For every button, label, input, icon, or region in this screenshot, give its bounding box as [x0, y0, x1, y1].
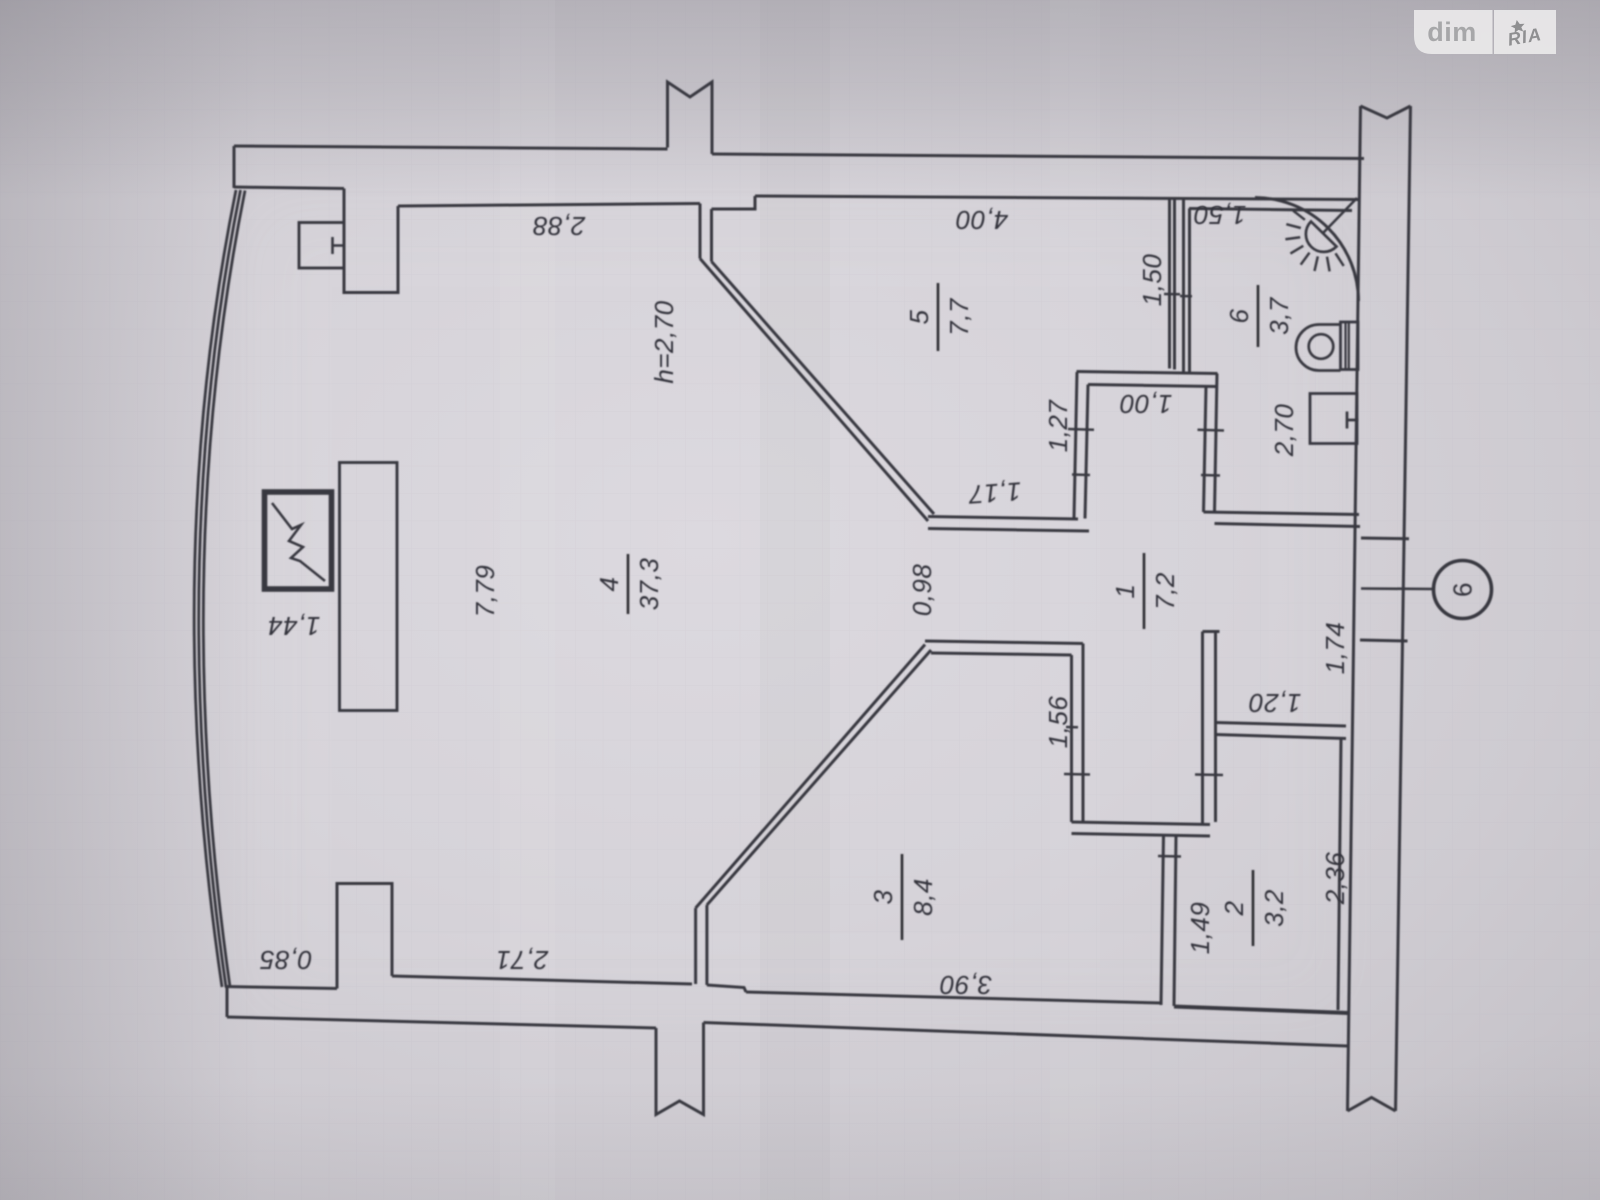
svg-text:3,7: 3,7 [1264, 296, 1294, 335]
svg-text:1,00: 1,00 [1120, 389, 1173, 419]
svg-text:1: 1 [1110, 584, 1140, 599]
svg-text:2,70: 2,70 [1269, 404, 1299, 458]
svg-text:6: 6 [1448, 582, 1478, 597]
svg-text:7,7: 7,7 [944, 297, 974, 336]
svg-text:3,90: 3,90 [940, 970, 993, 1000]
svg-text:1,44: 1,44 [268, 611, 321, 641]
svg-text:3: 3 [868, 889, 898, 904]
svg-text:1,27: 1,27 [1043, 399, 1073, 453]
svg-text:2: 2 [1219, 900, 1249, 916]
svg-text:2,88: 2,88 [533, 211, 587, 241]
svg-text:1,50: 1,50 [1194, 200, 1247, 230]
svg-text:3,2: 3,2 [1259, 889, 1289, 927]
svg-text:h=2,70: h=2,70 [649, 300, 679, 383]
svg-text:dim: dim [1427, 17, 1477, 47]
svg-text:0,98: 0,98 [907, 564, 937, 617]
svg-text:2,71: 2,71 [496, 945, 550, 975]
svg-text:4,00: 4,00 [956, 205, 1009, 235]
svg-text:0,85: 0,85 [260, 945, 313, 975]
svg-text:5: 5 [904, 309, 934, 324]
svg-text:1,74: 1,74 [1320, 622, 1350, 675]
svg-text:7,79: 7,79 [470, 565, 500, 618]
svg-text:37,3: 37,3 [634, 558, 664, 611]
svg-text:8,4: 8,4 [908, 878, 938, 916]
svg-text:6: 6 [1224, 308, 1254, 323]
svg-text:1,20: 1,20 [1249, 688, 1302, 718]
svg-text:4: 4 [594, 577, 624, 592]
svg-text:1,17: 1,17 [967, 476, 1023, 510]
svg-text:2,36: 2,36 [1320, 852, 1350, 906]
svg-text:1,50: 1,50 [1137, 254, 1167, 307]
svg-text:1,49: 1,49 [1185, 902, 1215, 955]
svg-text:7,2: 7,2 [1150, 572, 1180, 610]
svg-text:1,56: 1,56 [1043, 696, 1073, 749]
